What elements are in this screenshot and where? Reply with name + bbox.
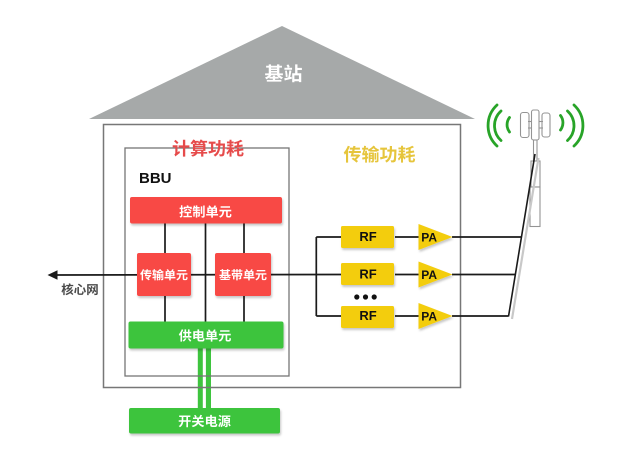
- svg-text:BBU: BBU: [139, 170, 172, 187]
- svg-text:PA: PA: [421, 310, 437, 324]
- svg-text:PA: PA: [421, 268, 437, 282]
- svg-text:RF: RF: [359, 308, 376, 323]
- svg-text:RF: RF: [359, 229, 376, 244]
- svg-text:RF: RF: [359, 267, 376, 282]
- svg-text:PA: PA: [421, 231, 437, 245]
